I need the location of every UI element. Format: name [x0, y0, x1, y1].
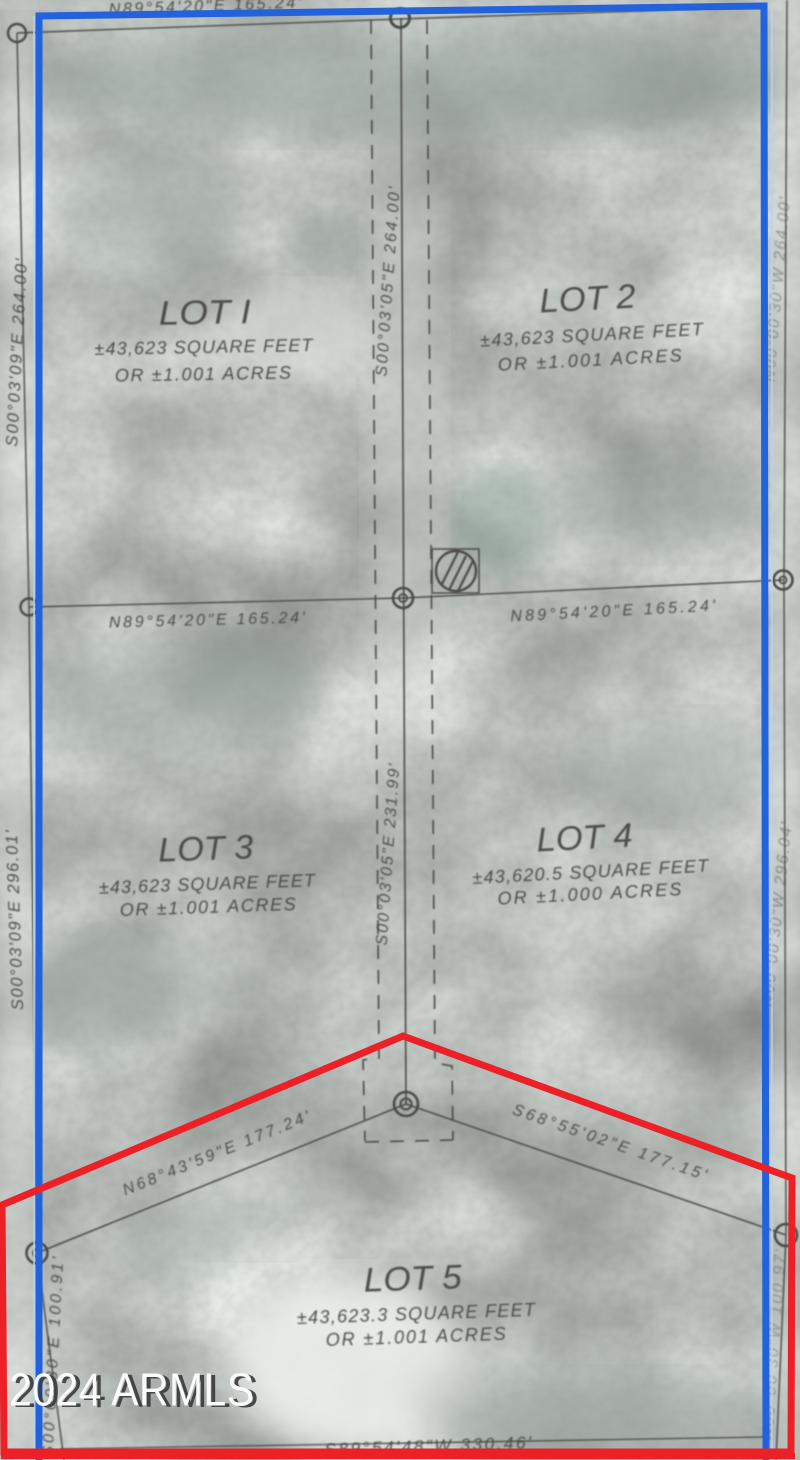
svg-text:LOT 4: LOT 4: [536, 817, 634, 860]
svg-text:OR ±1.001 ACRES: OR ±1.001 ACRES: [115, 362, 291, 385]
svg-text:±43,623 SQUARE FEET: ±43,623 SQUARE FEET: [94, 335, 314, 359]
svg-text:LOT 5: LOT 5: [363, 1258, 462, 1299]
svg-text:LOT 2: LOT 2: [539, 278, 637, 321]
svg-text:LOT 3: LOT 3: [158, 828, 254, 869]
svg-text:LOT I: LOT I: [159, 293, 252, 333]
svg-text:2024 ARMLS: 2024 ARMLS: [9, 1364, 254, 1416]
